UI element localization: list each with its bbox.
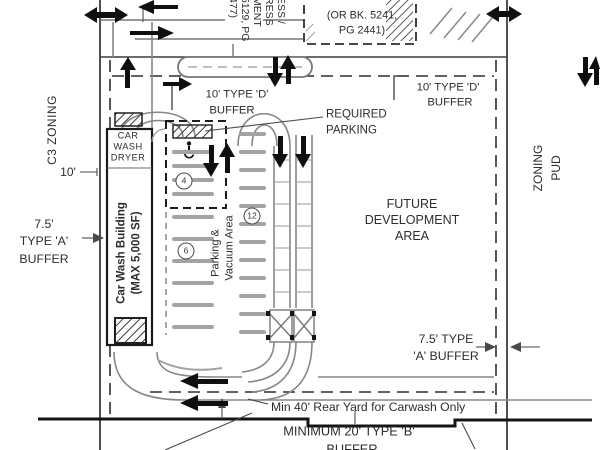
buffer-a-west-line3: BUFFER: [19, 253, 68, 265]
vacuum-aisle-arrow-up: [219, 143, 235, 173]
buffer-a-west-line2: TYPE 'A': [20, 235, 68, 247]
future-dev-line2: DEVELOPMENT: [365, 214, 459, 227]
driveway-hatch-marks: [430, 8, 492, 42]
stall-count-vacuum: 12: [244, 208, 261, 225]
door-swing: [152, 129, 165, 142]
buffer-a-east-line1: 7.5' TYPE: [419, 333, 474, 345]
easement-vertical-frag-5: 477): [228, 0, 239, 18]
access-easement-box: [304, 0, 492, 44]
easement-vertical-frag-1: ESS /: [276, 0, 287, 24]
easement-note-line1: (OR BK. 5241,: [327, 11, 397, 22]
buffer-a-west-line1: 7.5': [34, 218, 53, 230]
dryer-label-line2: WASH: [113, 142, 142, 151]
aisle-arrow-east: [163, 77, 192, 91]
zoning-label-east-line2: PUD: [550, 155, 562, 180]
buffer-d-west-line1: 10' TYPE 'D': [206, 89, 269, 100]
stall-count-front: 6: [178, 243, 195, 260]
vacuum-aisle-arrow-down: [203, 145, 219, 177]
buffer-a-east-line2: 'A' BUFFER: [413, 350, 479, 362]
zoning-label-east-line1: ZONING: [532, 145, 544, 192]
parking-stalls-front: [172, 215, 214, 329]
buffer-d-east-line1: 10' TYPE 'D': [417, 82, 480, 93]
building-label-line2: (MAX 5,000 SF): [131, 211, 143, 294]
buffer-a-right-dim: [476, 342, 540, 352]
dim-10ft-label: 10': [60, 166, 76, 178]
parking-canopy-hatch: [173, 125, 212, 138]
turn-tick-arc: [158, 360, 222, 370]
site-plan: C3 ZONING 10' 7.5' TYPE 'A' BUFFER 10' T…: [0, 0, 600, 450]
easement-note-partial: ACCESS ESMT.: [322, 0, 403, 2]
easement-hatch-corner: [306, 24, 315, 41]
buffer-d-east-line2: BUFFER: [427, 97, 472, 108]
easement-vertical-frag-4: 5129, PG: [240, 0, 251, 41]
dryer-vent-hatch: [115, 113, 142, 126]
equipment-pad-hatch: [115, 318, 146, 343]
zoning-label-west: C3 ZONING: [46, 95, 58, 165]
bracket-buffer-d-right: [394, 76, 408, 100]
buffer-d-west-line2: BUFFER: [209, 105, 254, 116]
buffer-b-line2: BUFFER: [326, 444, 377, 450]
required-parking-leader: [205, 117, 323, 131]
street-arrow-west: [138, 0, 178, 14]
traffic-arrows: [84, 0, 600, 411]
lane-a-exit-curve-2: [248, 342, 290, 382]
rear-yard-label: Min 40' Rear Yard for Carwash Only: [271, 401, 465, 413]
dryer-label-line3: DRYER: [111, 153, 145, 162]
accessible-parking-icon: [185, 141, 194, 157]
future-dev-line1: FUTURE: [387, 198, 438, 211]
east-arrow-up: [589, 56, 600, 85]
easement-vertical-frag-3: MENT: [252, 0, 263, 27]
parking-vacuum-line1: Parking &: [211, 229, 222, 277]
required-parking-line1: REQUIRED: [326, 109, 387, 121]
queue-arrow-down-2: [295, 136, 311, 168]
rear-road-arrow-2: [180, 395, 228, 411]
vacuum-stalls: [239, 132, 266, 334]
pay-station-canopies: [266, 310, 316, 342]
easement-note-line2: PG 2441): [339, 26, 385, 37]
east-arrow-down: [577, 57, 593, 87]
lane-a-exit-curve-1: [242, 342, 274, 372]
parking-vacuum-line2: Vacuum Area: [225, 215, 236, 280]
future-dev-line3: AREA: [395, 230, 429, 243]
required-parking-line2: PARKING: [326, 125, 377, 137]
dryer-label-line1: CAR: [118, 131, 139, 140]
buffer-b-line1: MINIMUM 20' TYPE 'B': [283, 426, 415, 439]
stall-count-accessible: 4: [176, 173, 193, 190]
entry-arrow-up: [120, 57, 136, 88]
required-parking-area: [166, 121, 266, 334]
building-label-line1: Car Wash Building: [116, 202, 128, 304]
site-plan-linework: [0, 0, 600, 450]
buffer-b-leader: [462, 423, 475, 449]
queue-lane-rungs: [274, 160, 312, 292]
easement-vertical-frag-2: RESS: [264, 0, 275, 26]
